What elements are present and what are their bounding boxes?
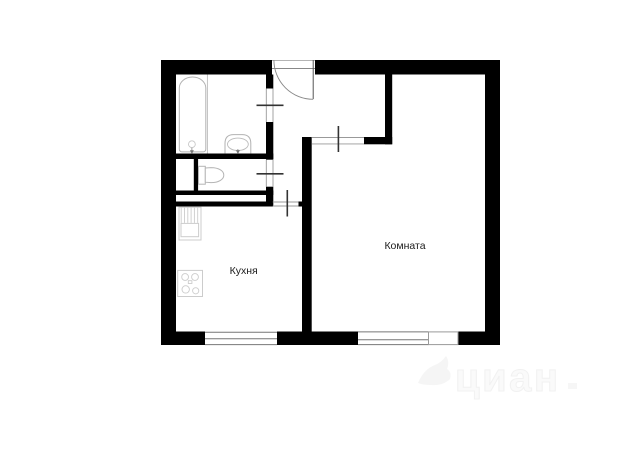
svg-text:Комната: Комната <box>384 240 425 252</box>
svg-text:циан: циан <box>455 356 561 400</box>
svg-text:Кухня: Кухня <box>230 265 258 277</box>
